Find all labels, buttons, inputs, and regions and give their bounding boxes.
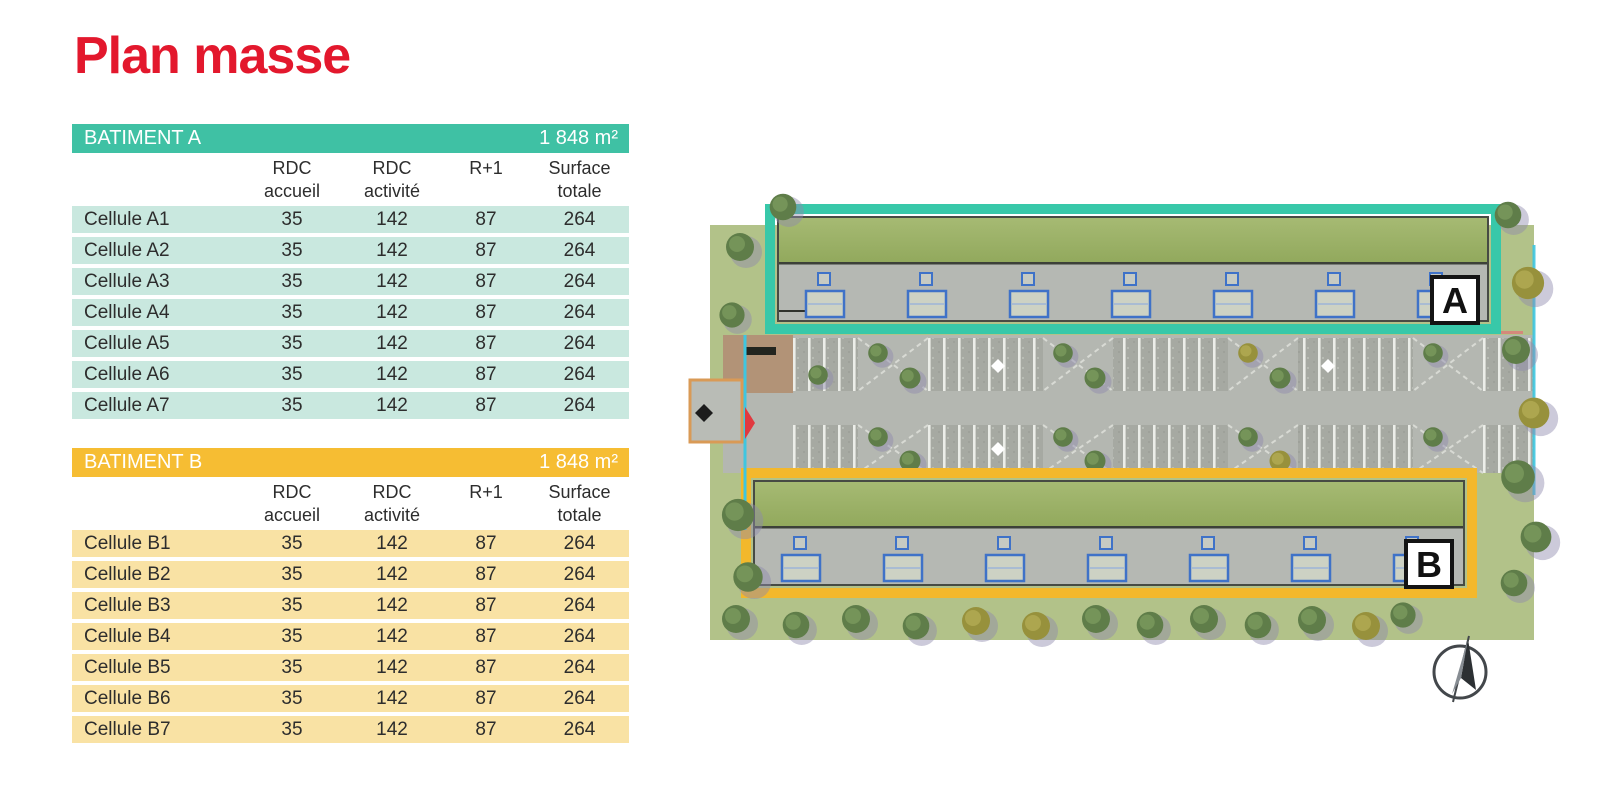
cell-value: 35 [242,533,342,555]
table-batiment-b: BATIMENT B 1 848 m² RDC accueil RDC acti… [72,448,629,747]
building-b: B [746,473,1472,593]
cell-value: 264 [530,302,629,324]
cell-value: 35 [242,333,342,355]
table-b-header-area: 1 848 m² [539,451,618,474]
cell-value: 87 [442,595,530,617]
building-a: A [770,209,1496,329]
table-a-header: BATIMENT A 1 848 m² [72,124,629,153]
table-a-header-label: BATIMENT A [84,127,201,150]
cell-value: 35 [242,209,342,231]
table-a-column-headers: RDC accueil RDC activité R+1 Surface tot… [72,153,629,206]
cell-value: 35 [242,688,342,710]
cell-value: 87 [442,657,530,679]
cell-value: 87 [442,533,530,555]
cell-value: 142 [342,626,442,648]
cell-value: 35 [242,364,342,386]
cell-label: Cellule A6 [72,364,242,386]
cell-value: 142 [342,564,442,586]
cell-value: 87 [442,564,530,586]
column-header-rdc-activite: RDC activité [342,157,442,203]
cell-value: 87 [442,302,530,324]
cell-label: Cellule B6 [72,688,242,710]
cell-value: 35 [242,719,342,741]
cell-value: 87 [442,688,530,710]
cell-value: 142 [342,302,442,324]
cell-label: Cellule B3 [72,595,242,617]
cell-value: 142 [342,333,442,355]
cell-value: 264 [530,240,629,262]
cell-value: 264 [530,595,629,617]
table-row: Cellule A4 35 142 87 264 [72,299,629,326]
cell-value: 142 [342,209,442,231]
cell-label: Cellule A2 [72,240,242,262]
column-header-empty [72,157,242,203]
building-a-label: A [1442,280,1468,321]
cell-value: 35 [242,564,342,586]
cell-value: 264 [530,209,629,231]
column-header-rdc-activite: RDC activité [342,481,442,527]
cell-value: 87 [442,395,530,417]
cell-value: 142 [342,533,442,555]
cell-value: 264 [530,395,629,417]
cell-value: 142 [342,240,442,262]
table-row: Cellule A6 35 142 87 264 [72,361,629,388]
cell-label: Cellule B4 [72,626,242,648]
table-row: Cellule A3 35 142 87 264 [72,268,629,295]
cell-label: Cellule B1 [72,533,242,555]
cell-value: 142 [342,719,442,741]
table-row: Cellule A1 35 142 87 264 [72,206,629,233]
cell-value: 35 [242,657,342,679]
table-row: Cellule B4 35 142 87 264 [72,623,629,650]
cell-value: 35 [242,302,342,324]
column-header-rdc-accueil: RDC accueil [242,481,342,527]
table-row: Cellule A5 35 142 87 264 [72,330,629,357]
cell-label: Cellule A7 [72,395,242,417]
cell-label: Cellule A5 [72,333,242,355]
cell-value: 87 [442,240,530,262]
cell-value: 35 [242,595,342,617]
cell-value: 35 [242,395,342,417]
cell-value: 264 [530,533,629,555]
page: Plan masse BATIMENT A 1 848 m² RDC accue… [0,0,1600,786]
cell-value: 264 [530,271,629,293]
cell-value: 87 [442,364,530,386]
cell-label: Cellule B7 [72,719,242,741]
cell-label: Cellule B2 [72,564,242,586]
table-b-column-headers: RDC accueil RDC activité R+1 Surface tot… [72,477,629,530]
cell-value: 87 [442,271,530,293]
column-header-surface-totale: Surface totale [530,157,629,203]
table-b-header: BATIMENT B 1 848 m² [72,448,629,477]
table-row: Cellule B5 35 142 87 264 [72,654,629,681]
cell-value: 264 [530,333,629,355]
table-row: Cellule A7 35 142 87 264 [72,392,629,419]
cell-label: Cellule B5 [72,657,242,679]
cell-value: 35 [242,271,342,293]
cell-label: Cellule A3 [72,271,242,293]
cell-label: Cellule A1 [72,209,242,231]
parking-area [723,331,1533,477]
cell-value: 87 [442,333,530,355]
north-arrow-icon [1434,636,1486,702]
column-header-r1: R+1 [442,157,530,203]
cell-value: 264 [530,564,629,586]
table-batiment-a: BATIMENT A 1 848 m² RDC accueil RDC acti… [72,124,629,423]
cell-value: 264 [530,364,629,386]
cell-value: 142 [342,595,442,617]
cell-value: 142 [342,364,442,386]
column-header-r1: R+1 [442,481,530,527]
cell-value: 87 [442,626,530,648]
cell-value: 87 [442,719,530,741]
cell-value: 142 [342,657,442,679]
column-header-empty [72,481,242,527]
table-a-header-area: 1 848 m² [539,127,618,150]
column-header-rdc-accueil: RDC accueil [242,157,342,203]
building-b-label: B [1416,544,1442,585]
table-row: Cellule B2 35 142 87 264 [72,561,629,588]
cell-value: 142 [342,395,442,417]
cell-value: 264 [530,688,629,710]
table-row: Cellule B1 35 142 87 264 [72,530,629,557]
column-header-surface-totale: Surface totale [530,481,629,527]
cell-value: 142 [342,271,442,293]
cell-label: Cellule A4 [72,302,242,324]
table-row: Cellule A2 35 142 87 264 [72,237,629,264]
cell-value: 264 [530,657,629,679]
site-plan: A B [688,185,1563,715]
cell-value: 35 [242,240,342,262]
cell-value: 264 [530,626,629,648]
page-title: Plan masse [74,26,350,86]
cell-value: 142 [342,688,442,710]
table-row: Cellule B6 35 142 87 264 [72,685,629,712]
table-row: Cellule B7 35 142 87 264 [72,716,629,743]
table-b-header-label: BATIMENT B [84,451,202,474]
cell-value: 35 [242,626,342,648]
cell-value: 264 [530,719,629,741]
cell-value: 87 [442,209,530,231]
table-row: Cellule B3 35 142 87 264 [72,592,629,619]
